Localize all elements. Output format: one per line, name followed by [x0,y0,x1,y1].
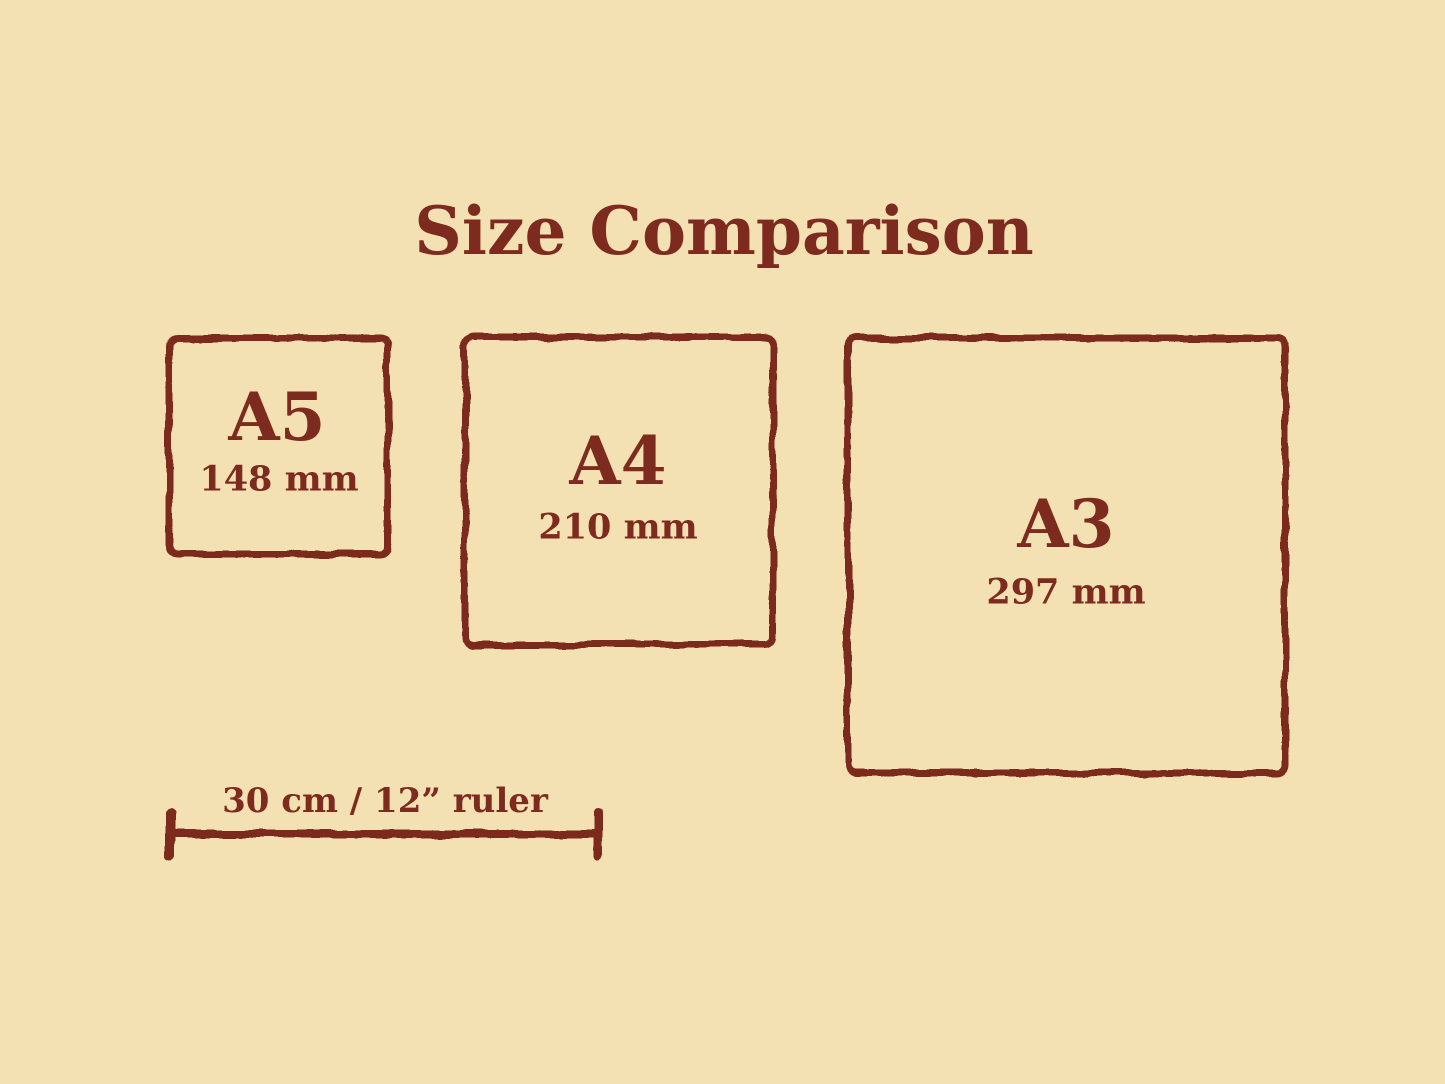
diagram-canvas [0,0,1445,1084]
a5-size-code: A5 [228,384,325,450]
page-title: Size Comparison [414,198,1034,264]
ruler-label: 30 cm / 12” ruler [222,784,548,818]
a3-size-code: A3 [1017,491,1114,557]
a4-size-dimension: 210 mm [538,510,697,545]
a3-size-dimension: 297 mm [986,575,1145,610]
a5-size-dimension: 148 mm [199,462,358,497]
size-comparison-diagram: Size Comparison A5 148 mm A4 210 mm A3 2… [0,0,1445,1084]
a4-size-code: A4 [569,428,666,494]
